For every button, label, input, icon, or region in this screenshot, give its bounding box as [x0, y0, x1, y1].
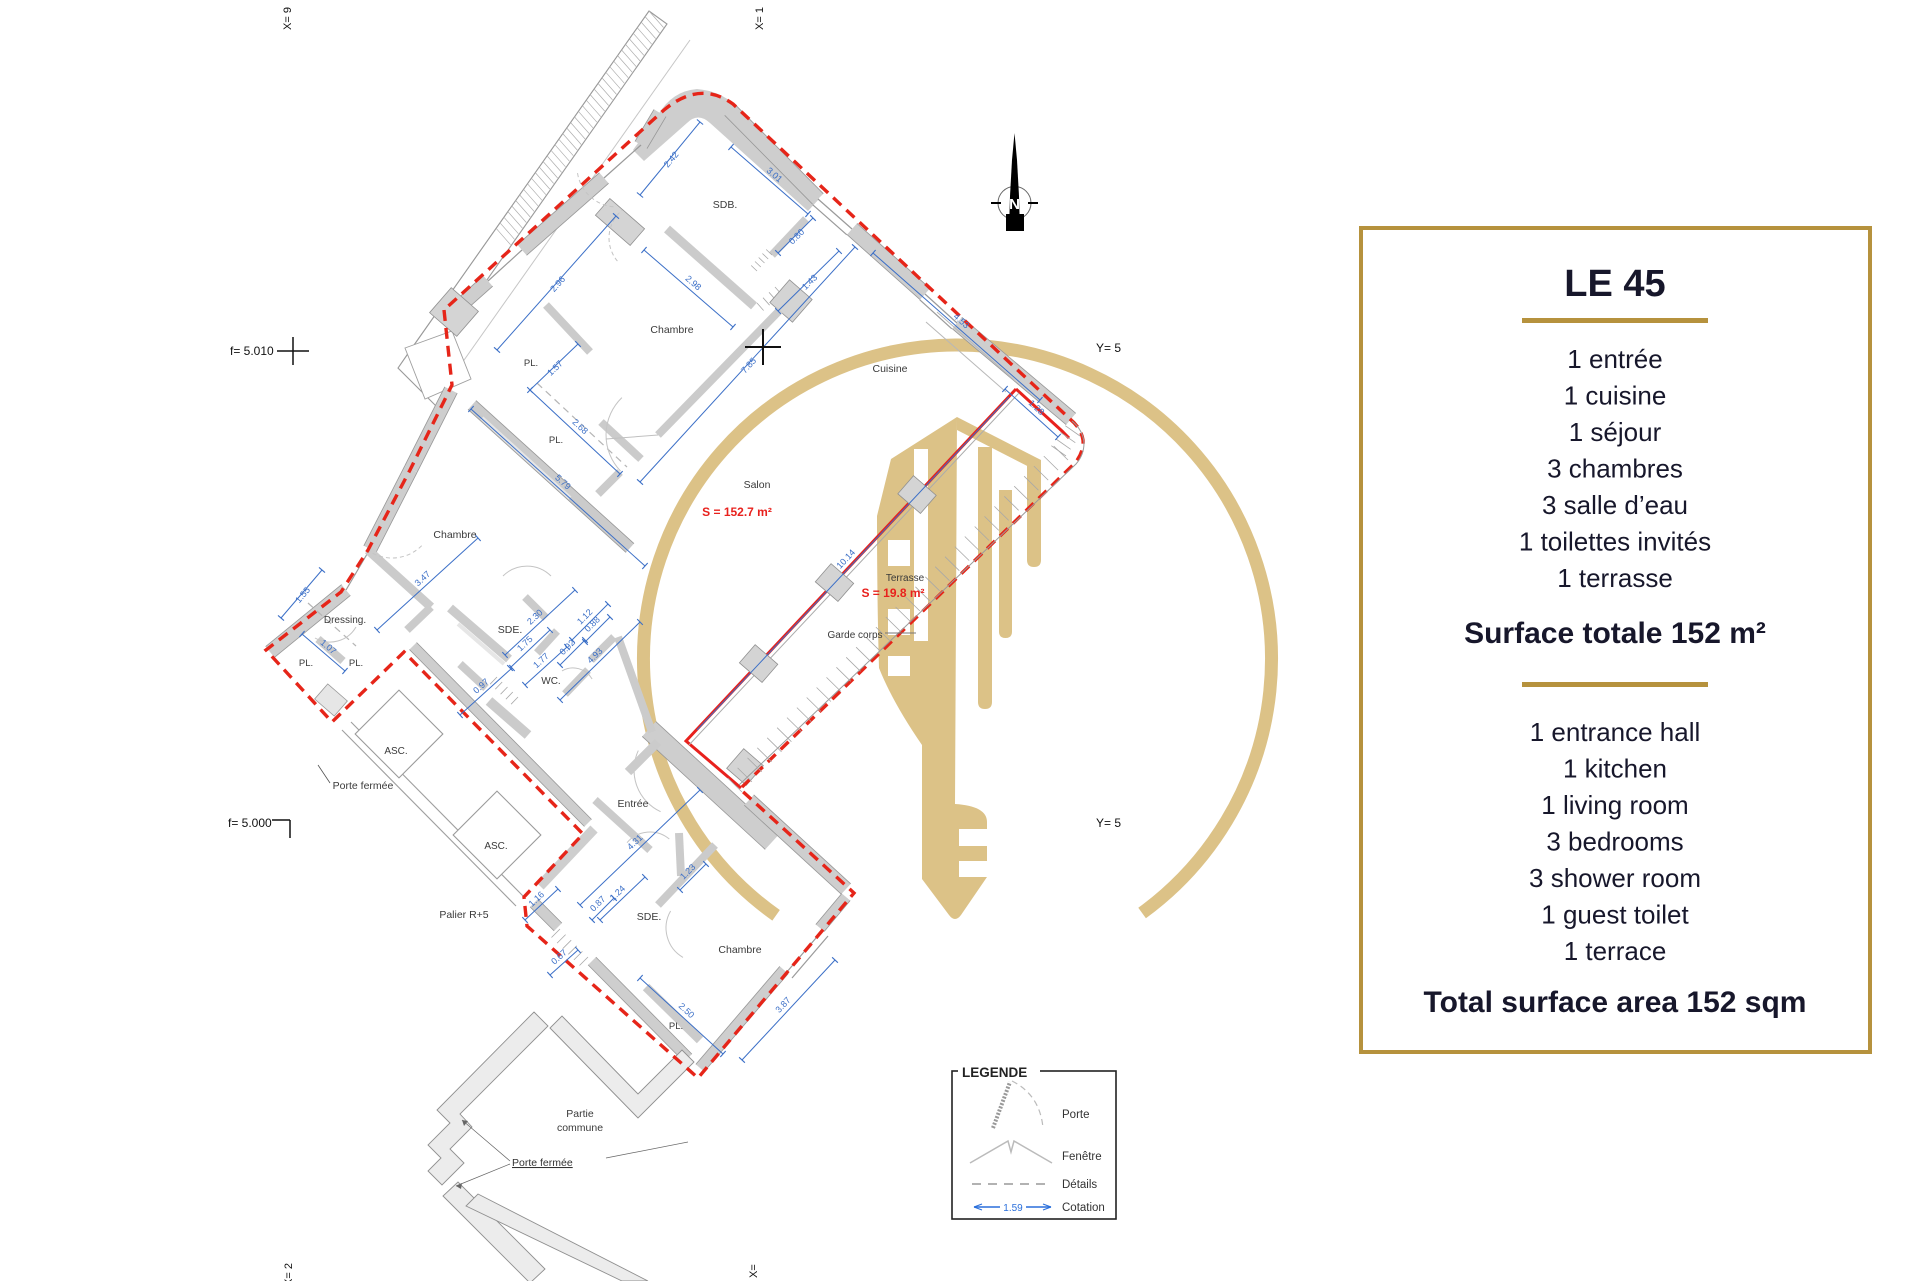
- svg-text:1 living room: 1 living room: [1541, 790, 1688, 820]
- svg-text:SDB.: SDB.: [713, 199, 738, 211]
- svg-text:2.68: 2.68: [570, 417, 590, 436]
- svg-text:3 shower room: 3 shower room: [1529, 863, 1701, 893]
- svg-text:3 chambres: 3 chambres: [1547, 454, 1683, 484]
- svg-text:f= 5.010: f= 5.010: [230, 344, 274, 358]
- svg-text:1.75: 1.75: [515, 634, 535, 653]
- svg-text:Palier R+5: Palier R+5: [439, 909, 488, 921]
- svg-text:1 entrée: 1 entrée: [1567, 344, 1662, 374]
- svg-text:SDE.: SDE.: [637, 911, 662, 923]
- svg-text:0.87: 0.87: [588, 894, 607, 913]
- svg-text:Porte fermée: Porte fermée: [512, 1157, 573, 1169]
- svg-text:2.96: 2.96: [548, 274, 567, 294]
- svg-text:Surface totale 152 m²: Surface totale 152 m²: [1464, 617, 1766, 650]
- svg-text:2.42: 2.42: [662, 150, 681, 170]
- svg-text:PL.: PL.: [549, 435, 563, 446]
- svg-text:1.55: 1.55: [293, 585, 312, 605]
- svg-text:1.77: 1.77: [531, 651, 551, 670]
- svg-text:SDE.: SDE.: [498, 624, 523, 636]
- svg-text:Chambre: Chambre: [718, 944, 761, 956]
- svg-text:Partie: Partie: [566, 1108, 594, 1120]
- svg-text:f= 5.000: f= 5.000: [228, 816, 272, 830]
- svg-text:3.87: 3.87: [773, 995, 792, 1015]
- svg-text:Porte fermée: Porte fermée: [333, 780, 394, 792]
- svg-text:Entrée: Entrée: [618, 798, 649, 810]
- svg-text:X= 1: X= 1: [754, 7, 766, 30]
- svg-text:1 séjour: 1 séjour: [1569, 417, 1662, 447]
- svg-text:1 toilettes invités: 1 toilettes invités: [1519, 527, 1711, 557]
- svg-text:3.47: 3.47: [413, 569, 433, 588]
- svg-text:0.92: 0.92: [557, 637, 576, 656]
- svg-text:Total surface area 152 sqm: Total surface area 152 sqm: [1424, 986, 1807, 1019]
- svg-text:1 entrance hall: 1 entrance hall: [1530, 717, 1701, 747]
- svg-text:X= 9: X= 9: [282, 7, 294, 30]
- svg-text:7.85: 7.85: [739, 356, 758, 376]
- svg-text:1.24: 1.24: [608, 883, 628, 902]
- svg-text:Dressing.: Dressing.: [324, 615, 366, 626]
- svg-text:N: N: [1009, 196, 1020, 213]
- svg-text:ASC.: ASC.: [484, 841, 507, 852]
- svg-text:Salon: Salon: [744, 479, 771, 491]
- svg-text:Détails: Détails: [1062, 1179, 1097, 1191]
- svg-text:PL.: PL.: [669, 1021, 683, 1032]
- svg-text:Y= 5: Y= 5: [1096, 816, 1121, 830]
- svg-text:Chambre: Chambre: [433, 529, 476, 541]
- svg-text:LE 45: LE 45: [1564, 263, 1665, 305]
- svg-text:Cuisine: Cuisine: [872, 363, 907, 375]
- svg-text:2.98: 2.98: [683, 273, 703, 292]
- svg-text:1.57: 1.57: [545, 358, 565, 377]
- svg-text:Fenêtre: Fenêtre: [1062, 1151, 1102, 1163]
- svg-text:S = 152.7 m²: S = 152.7 m²: [702, 505, 772, 519]
- svg-text:PL.: PL.: [524, 358, 538, 369]
- svg-text:Terrasse: Terrasse: [886, 573, 925, 584]
- svg-text:1 terrasse: 1 terrasse: [1557, 563, 1673, 593]
- svg-text:1 guest toilet: 1 guest toilet: [1541, 900, 1689, 930]
- svg-text:Porte: Porte: [1062, 1109, 1090, 1121]
- svg-text:X= 2: X= 2: [283, 1263, 295, 1281]
- svg-text:Chambre: Chambre: [650, 324, 693, 336]
- svg-text:10.14: 10.14: [834, 547, 857, 570]
- svg-text:1 terrace: 1 terrace: [1564, 936, 1667, 966]
- svg-text:1 cuisine: 1 cuisine: [1564, 381, 1667, 411]
- svg-text:1.59: 1.59: [1003, 1203, 1023, 1214]
- svg-text:X=: X=: [748, 1264, 760, 1278]
- svg-text:3 salle d’eau: 3 salle d’eau: [1542, 490, 1688, 520]
- svg-text:Garde corps: Garde corps: [827, 630, 882, 641]
- svg-text:commune: commune: [557, 1122, 603, 1134]
- svg-text:LEGENDE: LEGENDE: [962, 1065, 1027, 1080]
- svg-text:WC.: WC.: [541, 676, 560, 687]
- svg-text:3 bedrooms: 3 bedrooms: [1546, 827, 1683, 857]
- svg-text:PL.: PL.: [299, 658, 313, 669]
- svg-text:S = 19.8 m²: S = 19.8 m²: [861, 586, 924, 600]
- svg-text:ASC.: ASC.: [384, 746, 407, 757]
- svg-text:1 kitchen: 1 kitchen: [1563, 754, 1667, 784]
- svg-text:Y= 5: Y= 5: [1096, 341, 1121, 355]
- svg-text:Cotation: Cotation: [1062, 1202, 1105, 1214]
- svg-text:PL.: PL.: [349, 658, 363, 669]
- svg-text:0.80: 0.80: [787, 227, 806, 246]
